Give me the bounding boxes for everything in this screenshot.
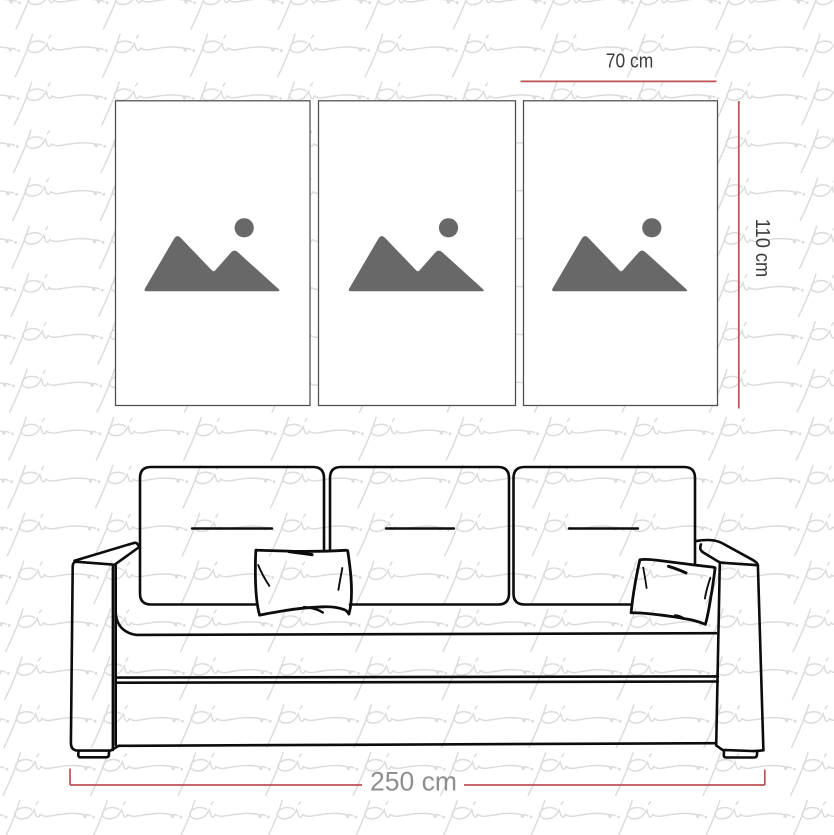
svg-text:250 cm: 250 cm (370, 767, 457, 797)
svg-text:110 cm: 110 cm (751, 219, 773, 278)
svg-text:70 cm: 70 cm (606, 50, 654, 72)
